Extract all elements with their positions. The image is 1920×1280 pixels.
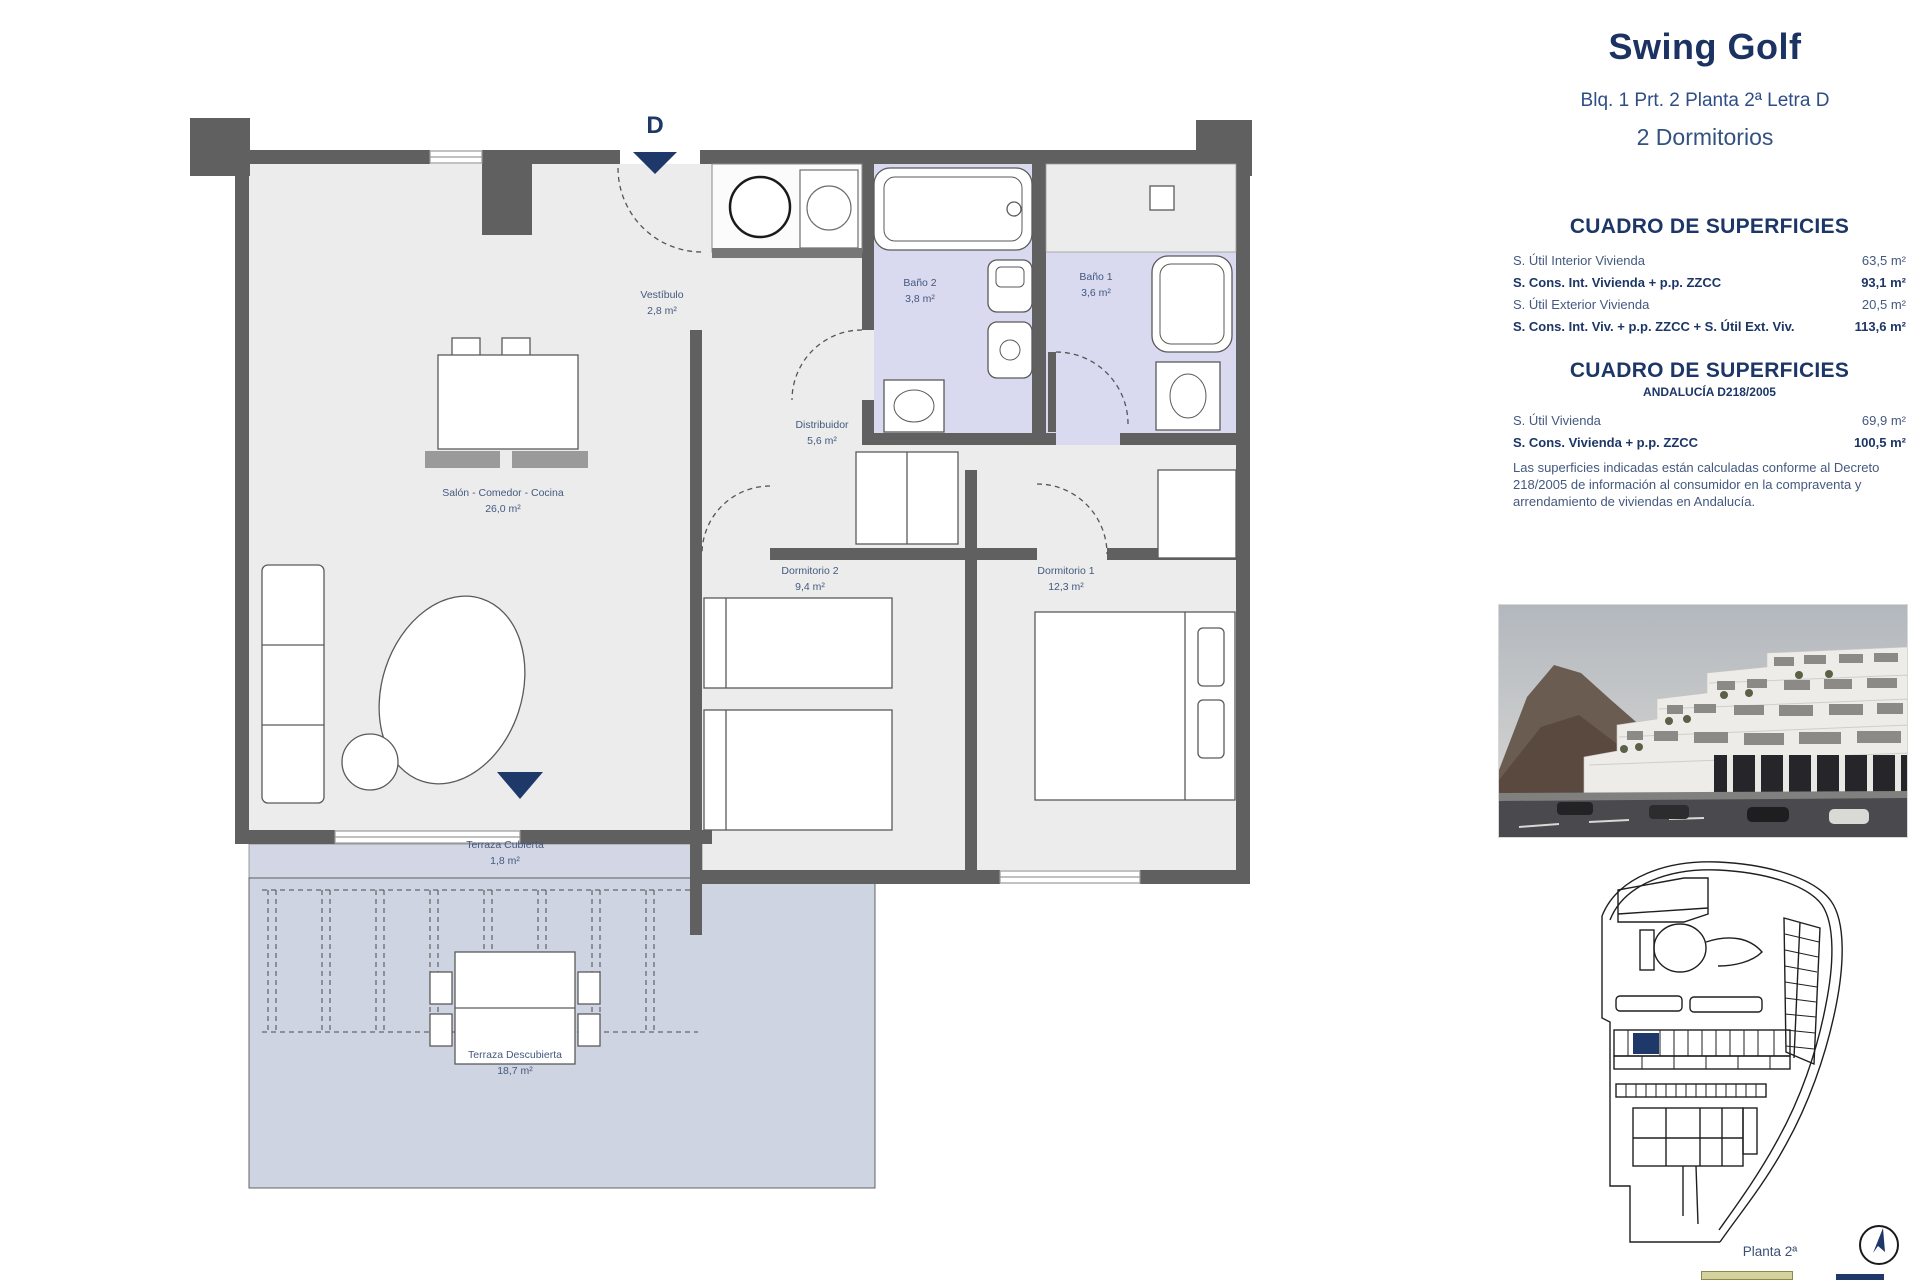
toilet-icon <box>988 260 1032 312</box>
kitchen-fixtures <box>712 164 862 258</box>
row-label: S. Útil Interior Vivienda <box>1513 253 1645 268</box>
double-bed-icon <box>1035 612 1235 800</box>
panel-header: Swing Golf Blq. 1 Prt. 2 Planta 2ª Letra… <box>1495 26 1915 151</box>
single-bed-icon <box>704 598 892 688</box>
row-label: S. Cons. Vivienda + p.p. ZZCC <box>1513 435 1698 450</box>
kitchen-sink-icon <box>730 177 790 237</box>
floor-plan-drawing <box>0 0 1500 1280</box>
hall-wardrobe-icon <box>856 452 958 544</box>
building-render-photo <box>1498 604 1908 838</box>
site-plan-floor-label: Planta 2ª <box>1700 1244 1840 1259</box>
room-label-salon: Salón - Comedor - Cocina 26,0 m² <box>393 486 613 518</box>
table-row: S. Útil Interior Vivienda 63,5 m² <box>1513 249 1906 271</box>
surface-tables: CUADRO DE SUPERFICIES S. Útil Interior V… <box>1513 215 1906 510</box>
room-label-distribuidor: Distribuidor 5,6 m² <box>762 418 882 450</box>
project-title: Swing Golf <box>1495 26 1915 68</box>
building-render-drawing <box>1499 605 1908 838</box>
bidet-icon <box>988 322 1032 378</box>
legend-swatch-cut <box>1701 1271 1793 1280</box>
entrance-letter: D <box>630 112 680 140</box>
north-compass-icon <box>1856 1222 1902 1268</box>
bedroom2-furniture <box>704 598 892 830</box>
room-label-bano1: Baño 1 3,6 m² <box>1044 270 1148 302</box>
table-row: S. Cons. Int. Viv. + p.p. ZZCC + S. Útil… <box>1513 315 1906 337</box>
legal-disclaimer: Las superficies indicadas están calculad… <box>1513 459 1906 510</box>
room-label-dormitorio2: Dormitorio 2 9,4 m² <box>750 564 870 596</box>
washbasin-icon <box>1156 362 1220 430</box>
single-bed-icon <box>704 710 892 830</box>
table-row: S. Cons. Int. Vivienda + p.p. ZZCC 93,1 … <box>1513 271 1906 293</box>
row-value: 100,5 m² <box>1854 435 1906 450</box>
highlighted-unit <box>1633 1033 1659 1054</box>
legend-swatch-navy-cut <box>1836 1274 1884 1280</box>
wardrobe-icon <box>1158 470 1236 558</box>
surfaces-table-2-subtitle: ANDALUCÍA D218/2005 <box>1513 385 1906 399</box>
room-label-dormitorio1: Dormitorio 1 12,3 m² <box>1006 564 1126 596</box>
row-label: S. Útil Vivienda <box>1513 413 1601 428</box>
row-label: S. Útil Exterior Vivienda <box>1513 297 1649 312</box>
row-value: 69,9 m² <box>1862 413 1906 428</box>
unit-reference: Blq. 1 Prt. 2 Planta 2ª Letra D <box>1495 90 1915 112</box>
dining-table-icon <box>425 338 588 468</box>
table-row: S. Útil Vivienda 69,9 m² <box>1513 409 1906 431</box>
kitchen-hob-icon <box>807 186 851 230</box>
row-value: 63,5 m² <box>1862 253 1906 268</box>
bedroom-count: 2 Dormitorios <box>1495 124 1915 151</box>
row-value: 93,1 m² <box>1861 275 1906 290</box>
table-row: S. Útil Exterior Vivienda 20,5 m² <box>1513 293 1906 315</box>
brochure-page: D Vestíbulo 2,8 m² Baño 2 3,8 m² Baño 1 … <box>0 0 1920 1280</box>
washbasin-icon <box>884 380 944 432</box>
surfaces-table-2-title: CUADRO DE SUPERFICIES <box>1513 359 1906 383</box>
row-label: S. Cons. Int. Vivienda + p.p. ZZCC <box>1513 275 1721 290</box>
room-label-terraza-descubierta: Terraza Descubierta 18,7 m² <box>415 1048 615 1080</box>
row-value: 20,5 m² <box>1862 297 1906 312</box>
bathtub-icon <box>1152 256 1232 352</box>
room-label-bano2: Baño 2 3,8 m² <box>870 276 970 308</box>
room-label-vestibulo: Vestíbulo 2,8 m² <box>600 288 724 320</box>
row-value: 113,6 m² <box>1855 319 1906 334</box>
table-row: S. Cons. Vivienda + p.p. ZZCC 100,5 m² <box>1513 431 1906 453</box>
surfaces-table-1-title: CUADRO DE SUPERFICIES <box>1513 215 1906 239</box>
bathtub-icon <box>874 168 1032 250</box>
sofa-icon <box>262 565 324 803</box>
site-plan-drawing <box>1588 856 1858 1248</box>
room-label-terraza-cubierta: Terraza Cubierta 1,8 m² <box>405 838 605 870</box>
row-label: S. Cons. Int. Viv. + p.p. ZZCC + S. Útil… <box>1513 319 1794 334</box>
